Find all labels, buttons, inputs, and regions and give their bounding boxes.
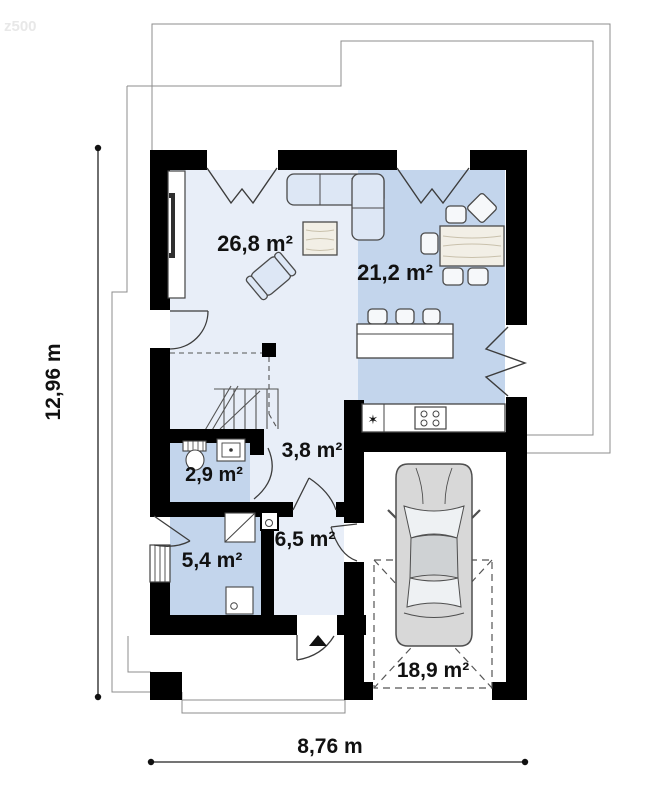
wall [506, 150, 527, 325]
terrace-step-left [128, 636, 151, 672]
dimension-height-label: 12,96 m [42, 343, 65, 420]
shower-icon [225, 513, 255, 542]
dimension-width-label: 8,76 m [297, 735, 362, 758]
wall [336, 502, 344, 517]
wall [150, 348, 170, 502]
wall [344, 400, 364, 523]
stove-icon [415, 407, 446, 429]
wall [250, 429, 264, 455]
porch-column [150, 672, 182, 700]
room-label-kitchen-dining: 21,2 m² [357, 260, 433, 285]
wall [344, 432, 527, 452]
dining-table [440, 226, 504, 266]
floor-plan: z500 [0, 0, 655, 804]
washbasin-icon [217, 439, 245, 461]
washing-machine-icon [226, 587, 253, 614]
tv-cabinet [168, 171, 185, 298]
dimension-height: 12,96 m [42, 145, 101, 700]
entrance-arrow-icon [309, 635, 327, 646]
room-label-living: 26,8 m² [217, 231, 293, 256]
wall [492, 682, 527, 700]
kitchen-counter: ✶ [362, 404, 505, 432]
wall [344, 562, 364, 700]
wall [150, 150, 170, 310]
room-label-entry-hall: 6,5 m² [275, 528, 336, 551]
wall [278, 150, 397, 170]
wall [150, 429, 264, 443]
dimension-width: 8,76 m [148, 735, 528, 765]
wall [150, 615, 297, 635]
room-label-hall: 3,8 m² [282, 439, 343, 462]
watermark: z500 [4, 18, 37, 35]
room-label-wc: 2,9 m² [185, 464, 243, 486]
room-label-utility: 5,4 m² [182, 549, 243, 572]
bar-counter [357, 309, 453, 358]
wall-post [262, 343, 276, 357]
wall [344, 682, 373, 700]
coffee-table [303, 222, 337, 255]
utility-window-icon [150, 545, 170, 582]
room-fill-living [170, 170, 358, 445]
car-icon [388, 464, 480, 646]
sink-star-icon: ✶ [368, 412, 379, 427]
garage-contents [374, 464, 492, 688]
floorplan-canvas: z500 [0, 0, 655, 804]
room-label-garage: 18,9 m² [397, 659, 469, 682]
porch-step [182, 692, 345, 713]
